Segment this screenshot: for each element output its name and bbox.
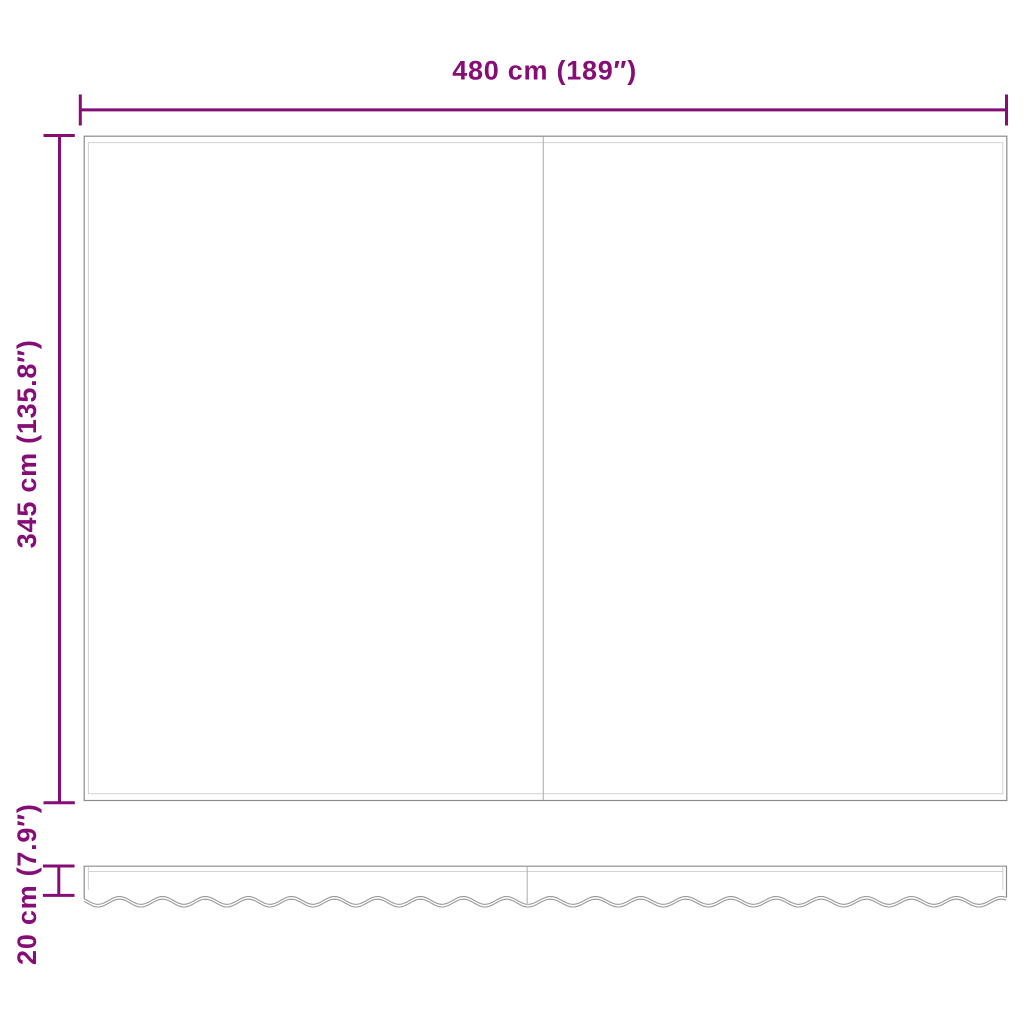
svg-text:480 cm (189″): 480 cm (189″)	[452, 56, 637, 86]
svg-text:20 cm (7.9″): 20 cm (7.9″)	[12, 803, 42, 965]
svg-text:345 cm (135.8″): 345 cm (135.8″)	[12, 339, 42, 548]
